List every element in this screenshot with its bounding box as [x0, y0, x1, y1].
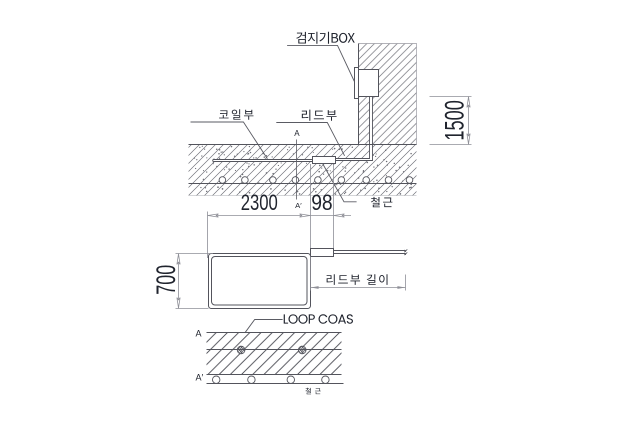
- svg-text:A′: A′: [295, 201, 302, 210]
- svg-text:2300: 2300: [241, 190, 278, 215]
- svg-text:A: A: [294, 129, 300, 138]
- svg-text:700: 700: [151, 265, 181, 295]
- svg-text:1500: 1500: [439, 100, 469, 141]
- svg-text:98: 98: [311, 190, 333, 215]
- svg-text:A′: A′: [196, 372, 204, 382]
- svg-text:A: A: [196, 328, 202, 338]
